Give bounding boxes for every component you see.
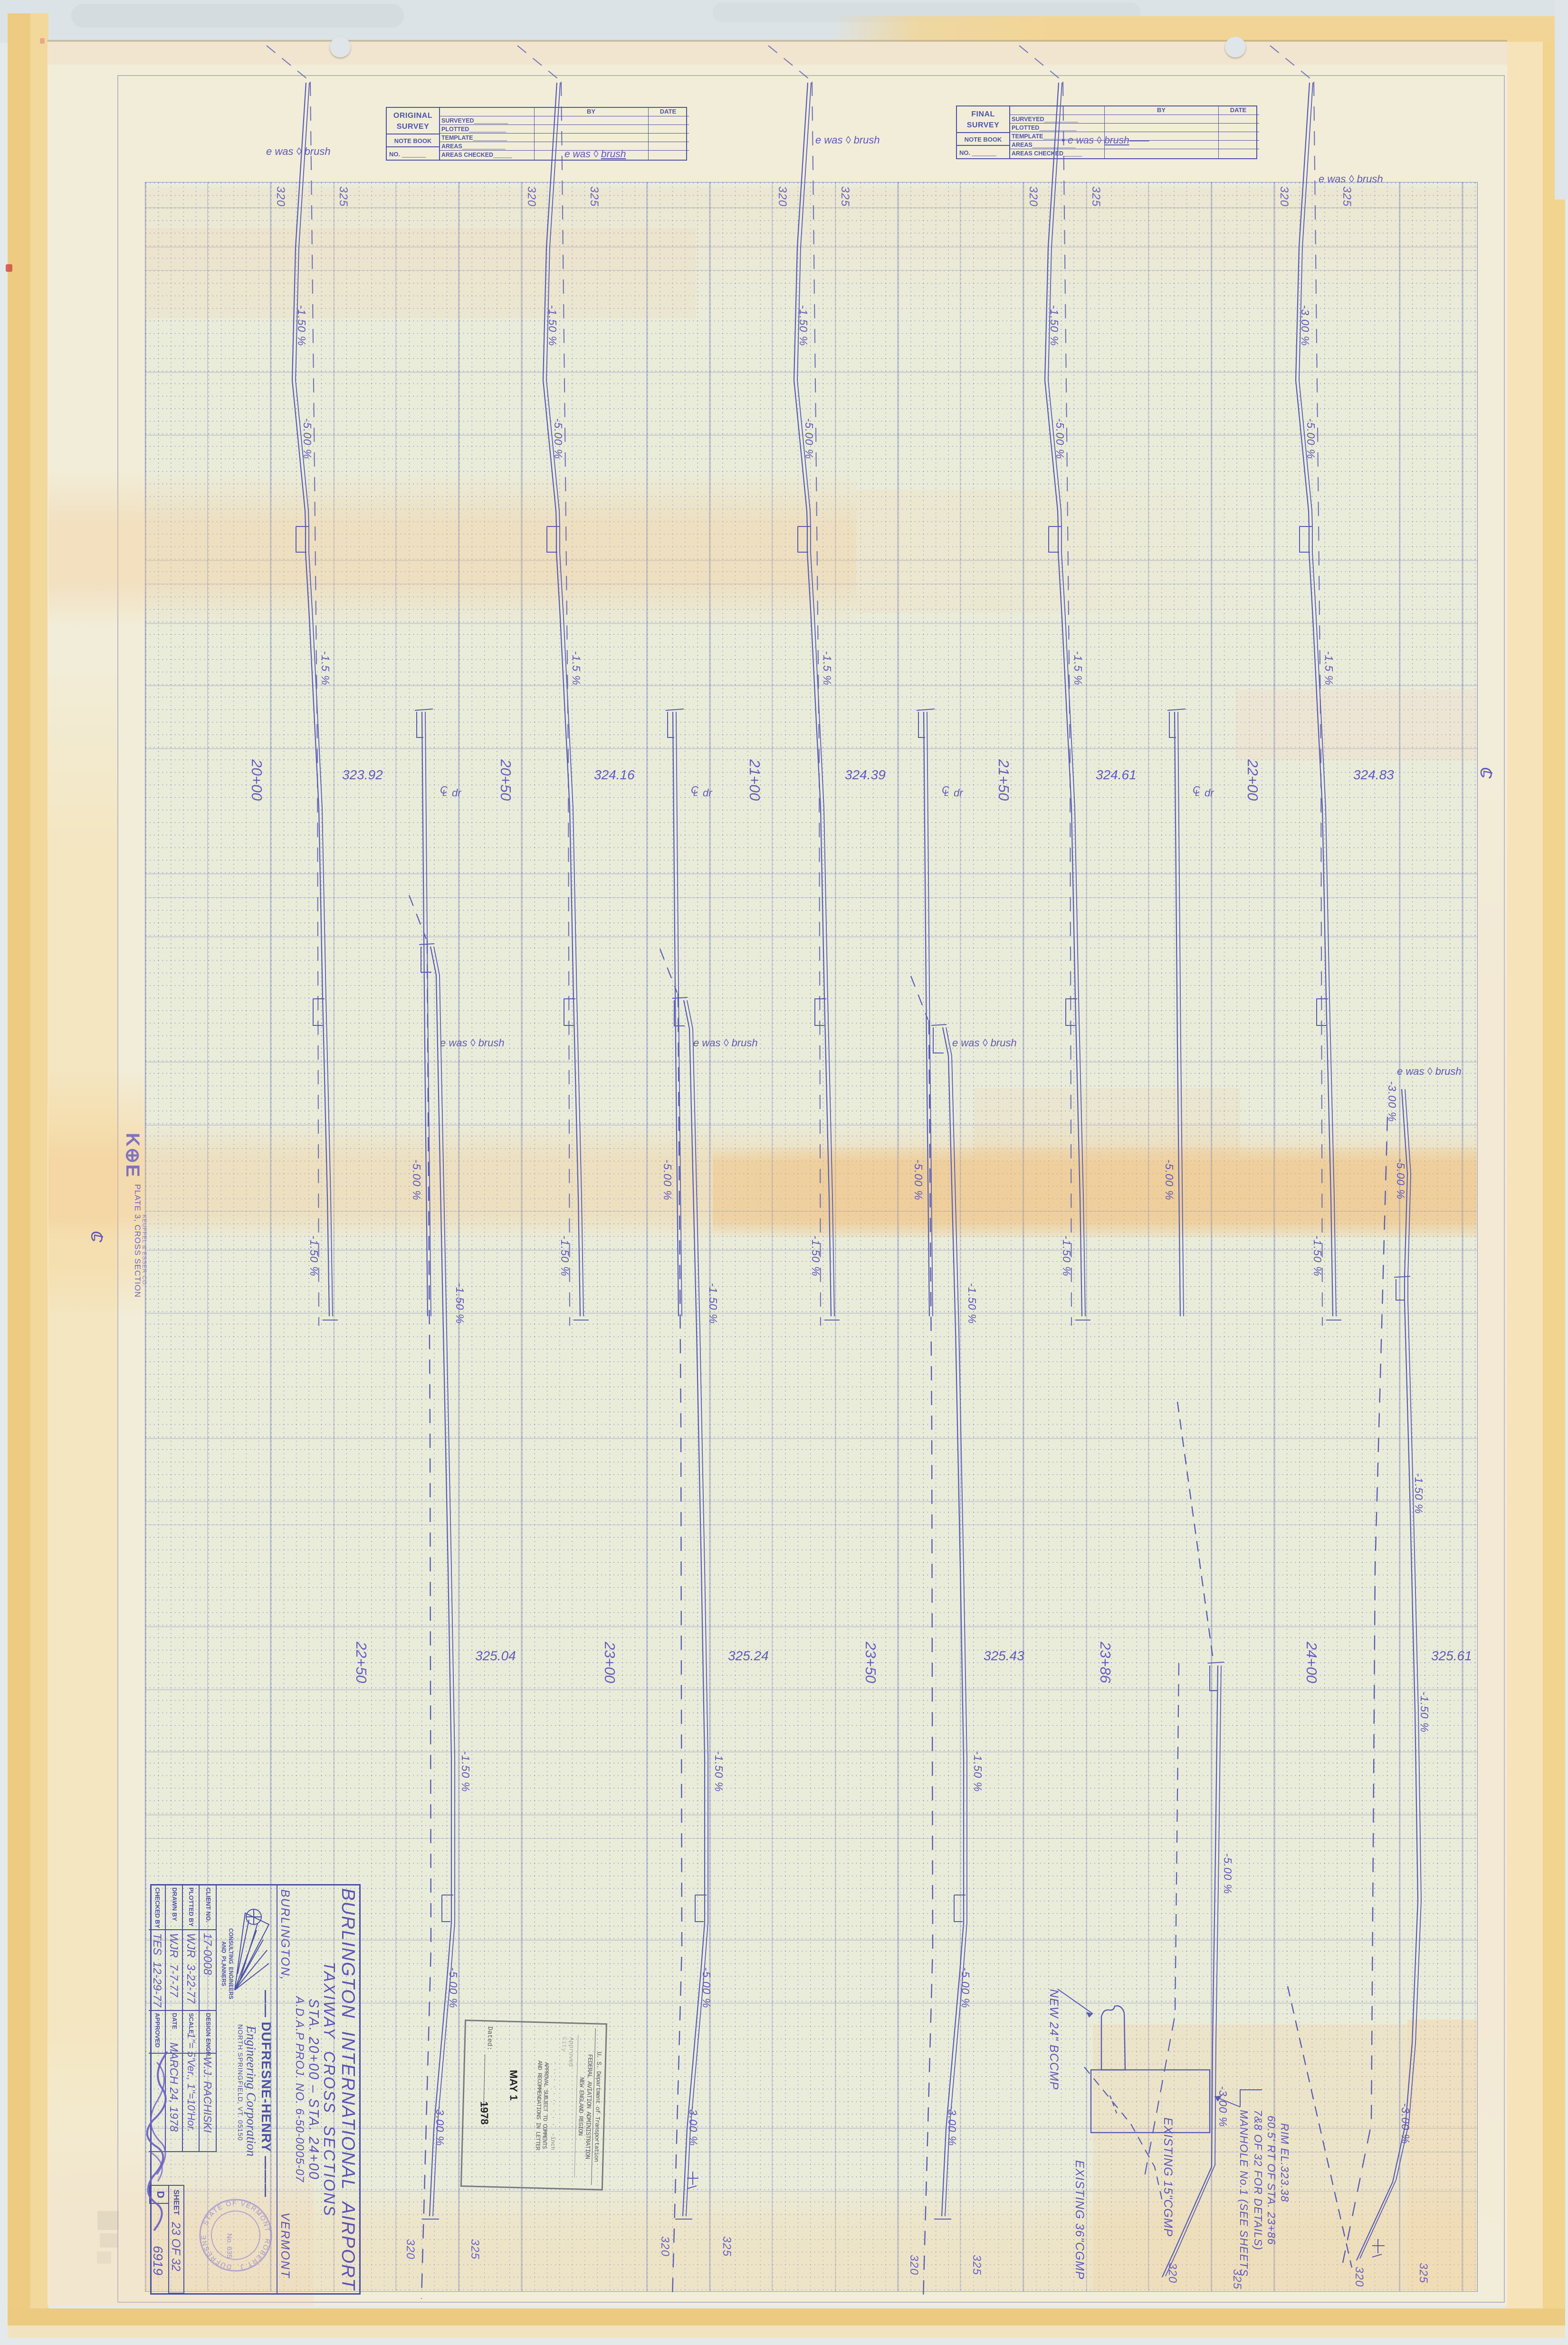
svg-text:-3.00 %: -3.00 % <box>946 2105 958 2146</box>
svg-text:-1.5 %: -1.5 % <box>821 651 833 685</box>
svg-text:-5.00 %: -5.00 % <box>912 1159 925 1200</box>
svg-text:-5.00 %: -5.00 % <box>803 418 815 459</box>
svg-text:-1.50 %: -1.50 % <box>707 1283 719 1324</box>
svg-text:-3.00 %: -3.00 % <box>687 2105 699 2146</box>
svg-text:-1.5 %: -1.5 % <box>570 651 583 685</box>
svg-text:No. 635: No. 635 <box>225 2233 233 2259</box>
svg-text:320: 320 <box>525 186 538 207</box>
svg-text:dr: dr <box>1205 787 1214 799</box>
svg-text:-5.00 %: -5.00 % <box>411 1159 423 1200</box>
svg-text:320: 320 <box>776 186 789 207</box>
svg-text:L: L <box>442 788 447 798</box>
svg-text:22+00: 22+00 <box>1244 759 1261 801</box>
svg-text:-1.50 %: -1.50 % <box>1311 1235 1324 1276</box>
svg-text:L: L <box>944 788 949 798</box>
svg-text:-3.00 %: -3.00 % <box>1386 1081 1398 1122</box>
svg-text:dr: dr <box>954 787 964 799</box>
svg-text:-5.00 %: -5.00 % <box>447 1967 459 2008</box>
svg-text:e was ◊ brush: e was ◊ brush <box>693 1037 758 1049</box>
svg-text:dr: dr <box>703 787 713 799</box>
svg-text:e was ◊ brush: e was ◊ brush <box>815 134 880 146</box>
svg-text:-1.50 %: -1.50 % <box>546 305 559 346</box>
svg-text:-1.50 %: -1.50 % <box>296 305 308 346</box>
svg-text:L: L <box>1195 788 1200 798</box>
svg-text:-5.00 %: -5.00 % <box>1054 418 1066 459</box>
svg-text:-1.50 %: -1.50 % <box>797 305 810 346</box>
svg-text:325.43: 325.43 <box>984 1648 1024 1663</box>
svg-text:-1.5 %: -1.5 % <box>1323 651 1335 685</box>
svg-text:e was ◊ brush: e was ◊ brush <box>1397 1065 1462 1077</box>
svg-text:21+00: 21+00 <box>746 759 763 801</box>
svg-text:-1.50 %: -1.50 % <box>810 1235 822 1276</box>
svg-text:K⊕E: K⊕E <box>122 1133 143 1178</box>
svg-text:-1.50 %: -1.50 % <box>966 1283 978 1324</box>
svg-text:320: 320 <box>1353 2267 1366 2287</box>
svg-text:325.61: 325.61 <box>1431 1648 1472 1663</box>
svg-text:-5.00 %: -5.00 % <box>1163 1159 1176 1200</box>
svg-text:324.83: 324.83 <box>1353 767 1394 782</box>
svg-text:-5.00 %: -5.00 % <box>700 1967 713 2008</box>
svg-text:60.5' RT OF STA. 23+86: 60.5' RT OF STA. 23+86 <box>1265 2115 1278 2245</box>
svg-text:320: 320 <box>404 2239 417 2259</box>
svg-text:325: 325 <box>588 186 601 207</box>
svg-text:-5.00 %: -5.00 % <box>1222 1853 1234 1894</box>
svg-text:-1.50 %: -1.50 % <box>559 1235 571 1276</box>
svg-text:325: 325 <box>1417 2263 1430 2283</box>
svg-text:22+50: 22+50 <box>353 1641 370 1683</box>
svg-text:23+00: 23+00 <box>602 1641 618 1683</box>
svg-text:MANHOLE No.1 (SEE SHEETS: MANHOLE No.1 (SEE SHEETS <box>1238 2110 1250 2277</box>
svg-text:21+50: 21+50 <box>995 759 1012 801</box>
svg-text:24+00: 24+00 <box>1303 1641 1320 1683</box>
svg-text:KEUFFEL & ESSER CO.: KEUFFEL & ESSER CO. <box>141 1215 148 1287</box>
svg-text:323.92: 323.92 <box>342 767 383 782</box>
svg-text:325: 325 <box>337 186 350 207</box>
svg-text:320: 320 <box>1027 186 1040 207</box>
svg-text:e was ◊ brush: e was ◊ brush <box>266 145 331 157</box>
svg-text:e was ◊ brush: e was ◊ brush <box>440 1037 505 1049</box>
svg-text:L: L <box>1481 770 1495 778</box>
svg-text:-5.00 %: -5.00 % <box>959 1967 972 2008</box>
svg-text:PLATE 3, CROSS SECTION: PLATE 3, CROSS SECTION <box>133 1184 142 1298</box>
svg-text:324.39: 324.39 <box>845 767 886 782</box>
svg-text:-1.50 %: -1.50 % <box>713 1751 725 1792</box>
svg-text:dr: dr <box>452 787 462 799</box>
svg-text:325.04: 325.04 <box>475 1648 516 1663</box>
svg-text:-3.00 %: -3.00 % <box>1299 305 1311 346</box>
svg-text:-3.00 %: -3.00 % <box>1399 2103 1412 2144</box>
svg-text:20+00: 20+00 <box>249 759 265 801</box>
svg-text:-1.50 %: -1.50 % <box>1418 1692 1431 1732</box>
svg-text:-5.00 %: -5.00 % <box>1395 1158 1407 1199</box>
svg-text:-5.00 %: -5.00 % <box>661 1159 674 1200</box>
svg-text:325: 325 <box>720 2236 733 2257</box>
svg-text:EXISTING 36"CGMP: EXISTING 36"CGMP <box>1073 2160 1086 2279</box>
svg-text:-5.00 %: -5.00 % <box>301 418 314 459</box>
svg-text:-1.50 %: -1.50 % <box>1061 1235 1073 1276</box>
svg-text:-3.00 %: -3.00 % <box>434 2105 446 2146</box>
svg-text:325: 325 <box>468 2239 481 2259</box>
svg-text:EXISTING 15"CGMP: EXISTING 15"CGMP <box>1161 2117 1175 2237</box>
svg-text:-1.50 %: -1.50 % <box>1048 305 1061 346</box>
svg-text:L: L <box>91 1234 106 1242</box>
svg-text:7&8 OF 32 FOR DETAILS): 7&8 OF 32 FOR DETAILS) <box>1252 2110 1264 2250</box>
svg-text:NEW 24" BCCMP: NEW 24" BCCMP <box>1047 1989 1061 2090</box>
svg-text:320: 320 <box>274 186 287 207</box>
svg-text:20+50: 20+50 <box>497 759 514 801</box>
svg-text:325.24: 325.24 <box>728 1648 769 1663</box>
svg-text:-1.5 %: -1.5 % <box>1072 651 1084 685</box>
svg-text:325: 325 <box>839 186 851 207</box>
svg-text:320: 320 <box>908 2255 920 2275</box>
svg-text:-1.50 %: -1.50 % <box>1413 1473 1425 1514</box>
svg-text:-5.00 %: -5.00 % <box>1305 418 1317 459</box>
svg-text:-1.50 %: -1.50 % <box>454 1283 466 1324</box>
svg-text:23+50: 23+50 <box>862 1641 879 1683</box>
svg-text:e was ◊ brush: e was ◊ brush <box>1319 173 1383 185</box>
svg-text:L: L <box>693 788 698 798</box>
svg-text:RIM EL.323.38: RIM EL.323.38 <box>1279 2123 1291 2202</box>
svg-text:-3.00 %: -3.00 % <box>1217 2086 1229 2127</box>
svg-text:324.16: 324.16 <box>594 767 635 782</box>
svg-text:325: 325 <box>1090 186 1102 207</box>
svg-text:-1.50 %: -1.50 % <box>308 1235 320 1276</box>
svg-text:-5.00 %: -5.00 % <box>552 418 564 459</box>
svg-text:23+86: 23+86 <box>1097 1641 1114 1684</box>
svg-text:325: 325 <box>970 2255 983 2275</box>
svg-text:-1.50 %: -1.50 % <box>459 1751 472 1792</box>
svg-text:320: 320 <box>659 2236 671 2257</box>
svg-text:-1.5 %: -1.5 % <box>319 651 332 685</box>
svg-text:-1.50 %: -1.50 % <box>972 1751 984 1792</box>
svg-text:320: 320 <box>1278 186 1291 207</box>
svg-text:DUFRESNE STATE OF VERMONT R: DUFRESNE STATE OF VERMONT ROBERT J. <box>200 2199 272 2271</box>
svg-text:325: 325 <box>1340 186 1353 207</box>
svg-text:e was ◊ brush: e was ◊ brush <box>952 1037 1017 1049</box>
svg-text:324.61: 324.61 <box>1096 767 1137 782</box>
